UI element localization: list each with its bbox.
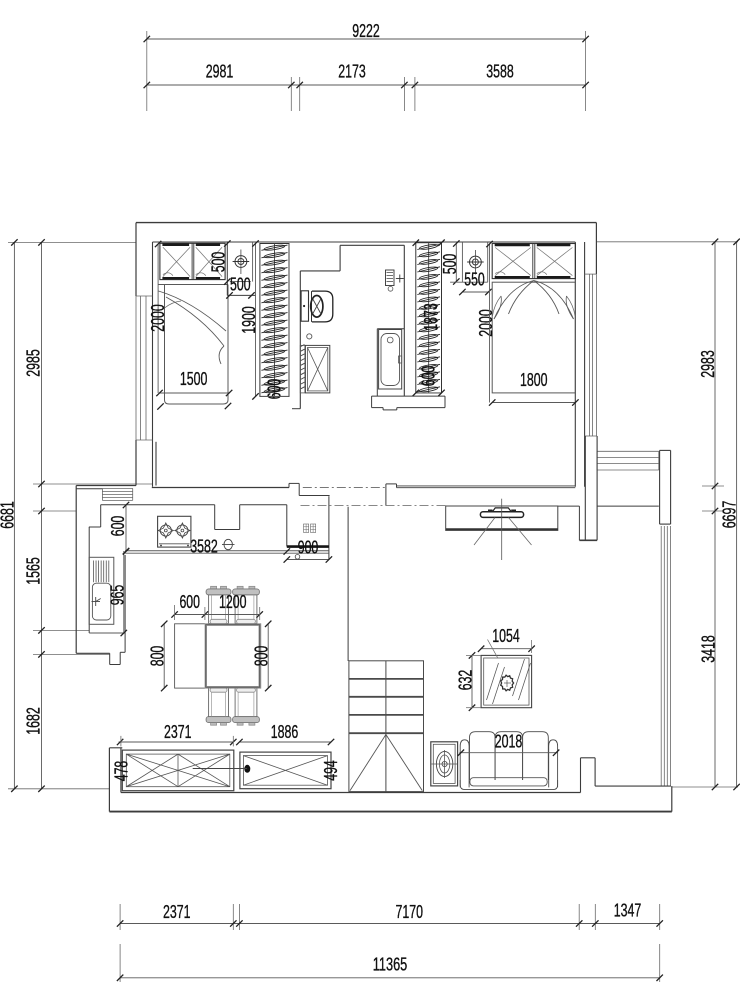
svg-text:800: 800 (148, 646, 168, 667)
svg-text:1565: 1565 (24, 557, 44, 585)
svg-text:1200: 1200 (219, 592, 247, 612)
svg-text:550: 550 (464, 269, 485, 289)
svg-text:1500: 1500 (180, 369, 208, 389)
svg-text:2173: 2173 (338, 61, 366, 81)
svg-text:3418: 3418 (699, 635, 719, 663)
svg-text:600: 600 (419, 366, 439, 387)
svg-text:2981: 2981 (206, 61, 234, 81)
svg-text:3582: 3582 (190, 536, 218, 556)
svg-text:2983: 2983 (698, 350, 718, 378)
svg-text:965: 965 (108, 585, 128, 606)
svg-text:1347: 1347 (614, 900, 642, 920)
svg-text:11365: 11365 (373, 954, 408, 974)
svg-text:800: 800 (251, 646, 271, 667)
svg-text:2000: 2000 (476, 309, 496, 337)
svg-text:2371: 2371 (163, 902, 191, 922)
svg-text:1886: 1886 (271, 722, 299, 742)
svg-text:2018: 2018 (495, 731, 523, 751)
svg-text:1054: 1054 (492, 626, 520, 646)
svg-text:9222: 9222 (352, 21, 380, 41)
svg-text:494: 494 (321, 760, 341, 781)
svg-text:2000: 2000 (148, 304, 168, 332)
svg-text:7170: 7170 (396, 902, 424, 922)
svg-text:1682: 1682 (24, 707, 44, 735)
svg-text:600: 600 (108, 516, 128, 537)
svg-text:500: 500 (230, 275, 251, 295)
svg-text:600: 600 (179, 592, 200, 612)
svg-text:1900: 1900 (239, 306, 259, 334)
svg-text:1800: 1800 (520, 370, 548, 390)
svg-text:500: 500 (208, 252, 228, 273)
svg-text:478: 478 (111, 761, 131, 782)
svg-text:1873: 1873 (421, 303, 441, 331)
svg-text:900: 900 (298, 537, 319, 557)
svg-text:6697: 6697 (720, 501, 740, 529)
svg-text:632: 632 (455, 670, 475, 691)
svg-text:6681: 6681 (0, 501, 18, 529)
svg-text:2371: 2371 (164, 722, 192, 742)
svg-text:500: 500 (440, 254, 460, 275)
svg-text:3588: 3588 (486, 61, 514, 81)
svg-text:2985: 2985 (24, 349, 44, 377)
